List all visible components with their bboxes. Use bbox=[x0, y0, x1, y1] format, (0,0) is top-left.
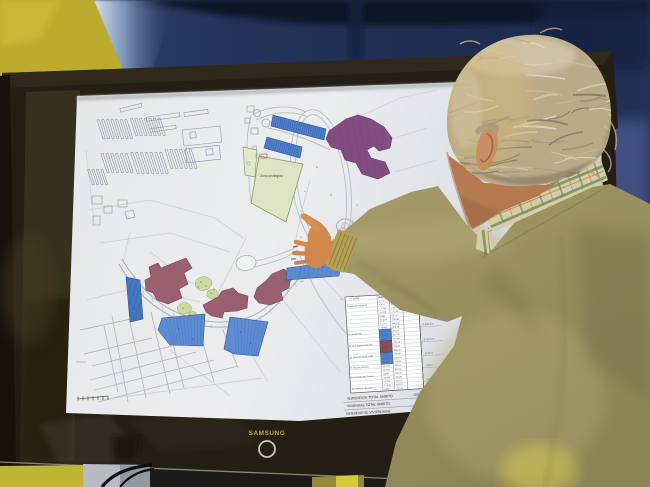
svg-text:3.688: 3.688 bbox=[383, 373, 389, 375]
svg-text:4.474: 4.474 bbox=[379, 304, 385, 306]
svg-text:2.174: 2.174 bbox=[379, 300, 385, 302]
svg-text:Zona protegida: Zona protegida bbox=[260, 174, 283, 178]
svg-text:8.147: 8.147 bbox=[381, 331, 387, 333]
svg-text:SAMSUNG: SAMSUNG bbox=[249, 430, 286, 437]
svg-text:zona: zona bbox=[353, 297, 359, 300]
svg-text:23.90 m: 23.90 m bbox=[425, 352, 434, 356]
svg-text:4.684: 4.684 bbox=[381, 339, 387, 341]
svg-text:3.664: 3.664 bbox=[380, 316, 386, 318]
svg-text:E: E bbox=[330, 193, 332, 197]
svg-text:5.600: 5.600 bbox=[384, 389, 390, 391]
svg-text:em: em bbox=[300, 279, 305, 283]
svg-text:E: E bbox=[316, 165, 318, 169]
